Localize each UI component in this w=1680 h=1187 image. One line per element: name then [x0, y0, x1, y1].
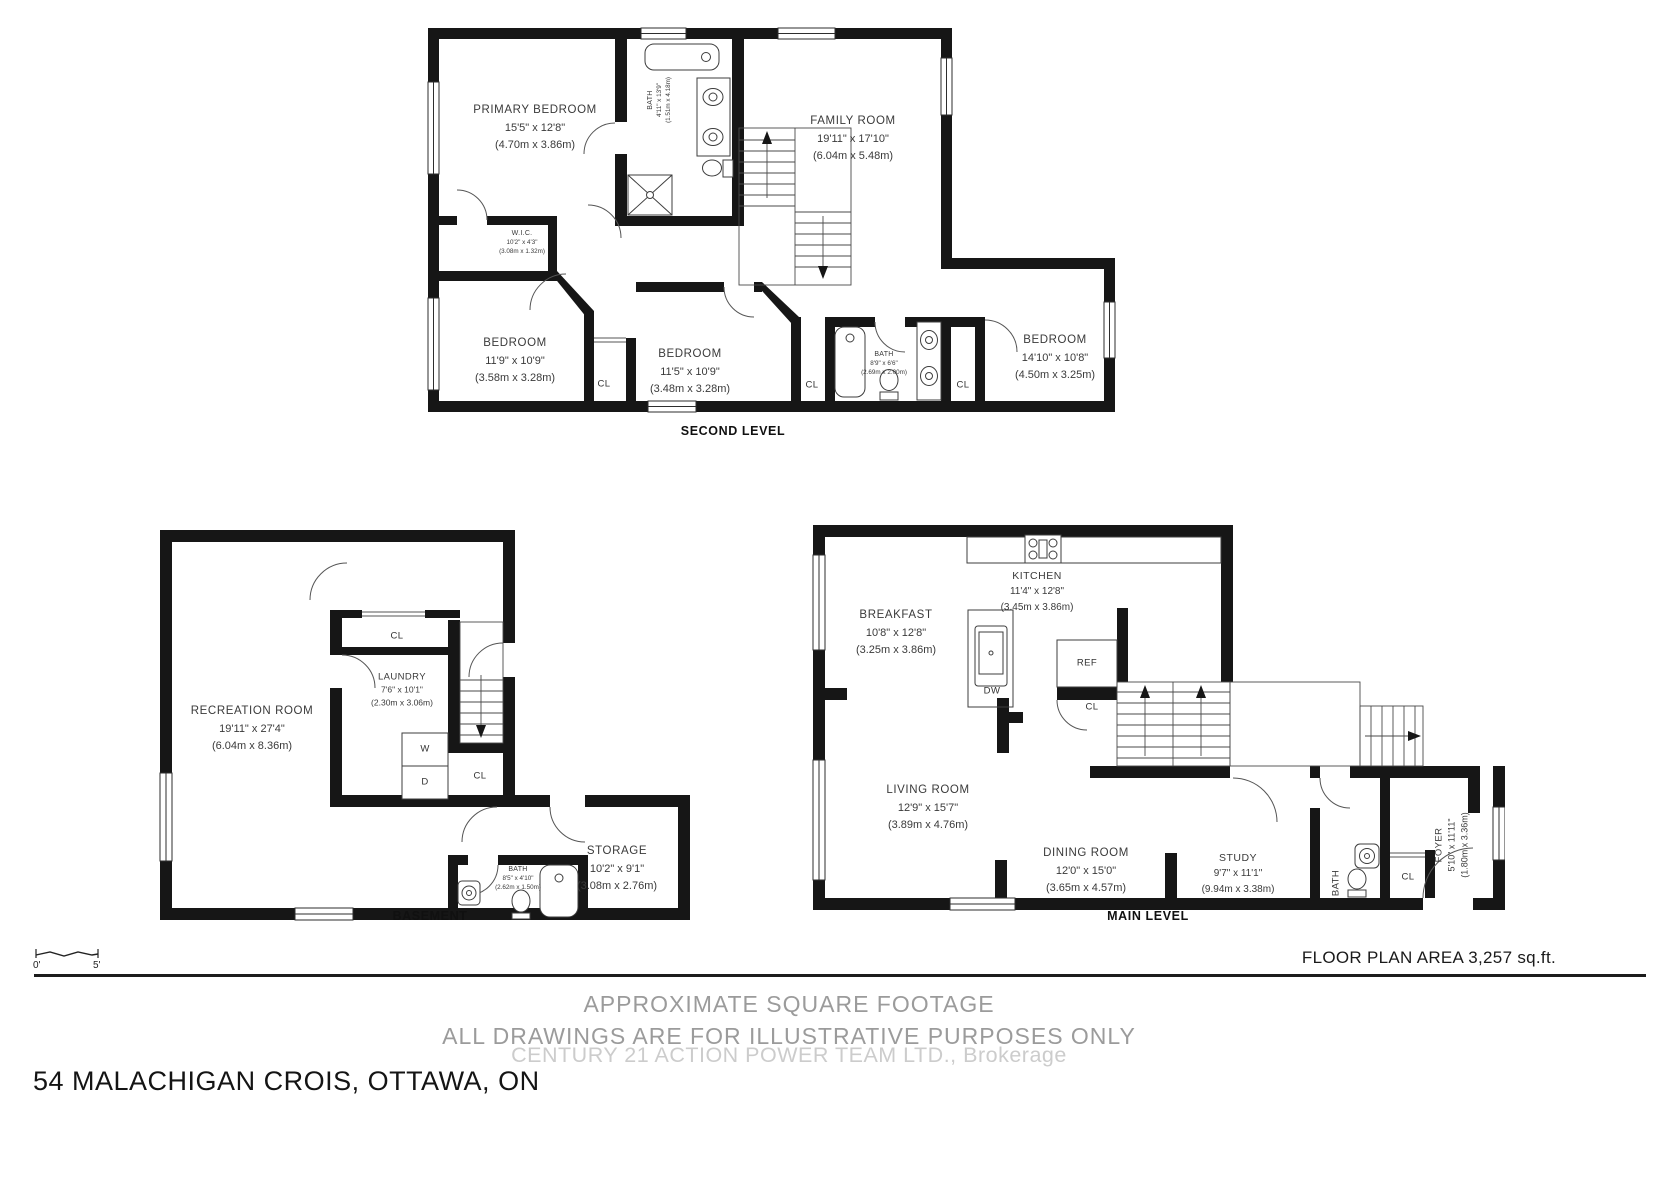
room-label-dining-room: DINING ROOM 12'0" x 15'0" (3.65m x 4.57m… — [1043, 845, 1129, 898]
bathtub-icon — [645, 44, 719, 70]
floor-title-main-level: MAIN LEVEL — [1107, 909, 1189, 923]
main-level-walls — [813, 525, 1505, 910]
room-label-kitchen: KITCHEN 11'4" x 12'8" (3.45m x 3.86m) — [1001, 568, 1074, 616]
room-label-breakfast: BREAKFAST 10'8" x 12'8" (3.25m x 3.86m) — [856, 607, 936, 660]
room-label-study: STUDY 9'7" x 11'1" (9.94m x 3.38m) — [1202, 850, 1275, 898]
floor-title-second-level: SECOND LEVEL — [681, 424, 785, 438]
closet-label: CL — [957, 380, 970, 391]
double-sink-icon — [917, 322, 941, 400]
room-label-ensuite-bath: BATH 4'11" x 13'9" (1.51m x 4.18m) — [647, 77, 673, 123]
toilet-icon — [703, 160, 734, 177]
room-label-bath-basement: BATH 8'5" x 4'10" (2.62m x 1.50m) — [495, 866, 541, 892]
washer-label: W — [420, 744, 429, 755]
room-label-bedroom-left: BEDROOM 11'9" x 10'9" (3.58m x 3.28m) — [475, 335, 555, 388]
room-label-bath-main: BATH — [1330, 870, 1343, 896]
dishwasher-icon — [975, 626, 1007, 686]
room-label-bedroom-middle: BEDROOM 11'5" x 10'9" (3.48m x 3.28m) — [650, 346, 730, 399]
main-level-stairs — [1117, 682, 1423, 766]
room-label-recreation-room: RECREATION ROOM 19'11" x 27'4" (6.04m x … — [191, 703, 314, 756]
basement-stairs — [460, 622, 503, 743]
shower-icon — [628, 175, 672, 215]
room-label-living-room: LIVING ROOM 12'9" x 15'7" (3.89m x 4.76m… — [886, 782, 969, 835]
room-label-storage: STORAGE 10'2" x 9'1" (3.08m x 2.76m) — [577, 843, 657, 896]
double-sink-icon — [697, 78, 730, 156]
toilet-icon — [512, 890, 530, 919]
closet-label: CL — [474, 771, 487, 782]
dishwasher-label: DW — [984, 686, 1001, 697]
footer-divider — [34, 974, 1646, 977]
stove-icon — [1025, 535, 1061, 563]
approx-square-footage-note: APPROXIMATE SQUARE FOOTAGE — [0, 991, 1578, 1018]
bathtub-icon — [540, 865, 578, 917]
room-label-wic: W.I.C. 10'2" x 4'3" (3.08m x 1.32m) — [499, 230, 545, 256]
room-label-foyer: FOYER 5'10" x 11'11" (1.80m x 3.36m) — [1433, 812, 1472, 878]
scale-start-label: 0' — [33, 960, 40, 971]
basement-windows — [160, 773, 353, 920]
fridge-label: REF — [1077, 658, 1097, 669]
closet-label: CL — [1402, 872, 1415, 883]
property-address: 54 MALACHIGAN CROIS, OTTAWA, ON — [33, 1066, 540, 1097]
disclaimer-note: ALL DRAWINGS ARE FOR ILLUSTRATIVE PURPOS… — [0, 1023, 1578, 1050]
floor-plan-area-note: FLOOR PLAN AREA 3,257 sq.ft. — [1150, 948, 1556, 968]
closet-label: CL — [806, 380, 819, 391]
floor-title-basement: BASEMENT — [393, 909, 468, 923]
main-level-plan — [805, 520, 1505, 920]
room-label-bath-second: BATH 8'9" x 6'6" (2.69m x 2.00m) — [861, 351, 907, 377]
floor-plan-page: PRIMARY BEDROOM 15'5" x 12'8" (4.70m x 3… — [0, 0, 1680, 1187]
basement-fixtures — [402, 733, 578, 919]
closet-label: CL — [1086, 702, 1099, 713]
room-label-laundry: LAUNDRY 7'6" x 10'1" (2.30m x 3.06m) — [371, 671, 433, 710]
dryer-label: D — [421, 777, 428, 788]
scale-end-label: 5' — [93, 960, 100, 971]
room-label-bedroom-right: BEDROOM 14'10" x 10'8" (4.50m x 3.25m) — [1015, 332, 1095, 385]
sink-icon — [458, 881, 480, 905]
room-label-primary-bedroom: PRIMARY BEDROOM 15'5" x 12'8" (4.70m x 3… — [473, 102, 597, 155]
closet-label: CL — [598, 379, 611, 390]
closet-label: CL — [391, 631, 404, 642]
kitchen-counter — [967, 537, 1221, 563]
room-label-family-room: FAMILY ROOM 19'11" x 17'10" (6.04m x 5.4… — [810, 113, 895, 166]
sink-icon — [1355, 844, 1379, 868]
toilet-icon — [1348, 869, 1366, 897]
